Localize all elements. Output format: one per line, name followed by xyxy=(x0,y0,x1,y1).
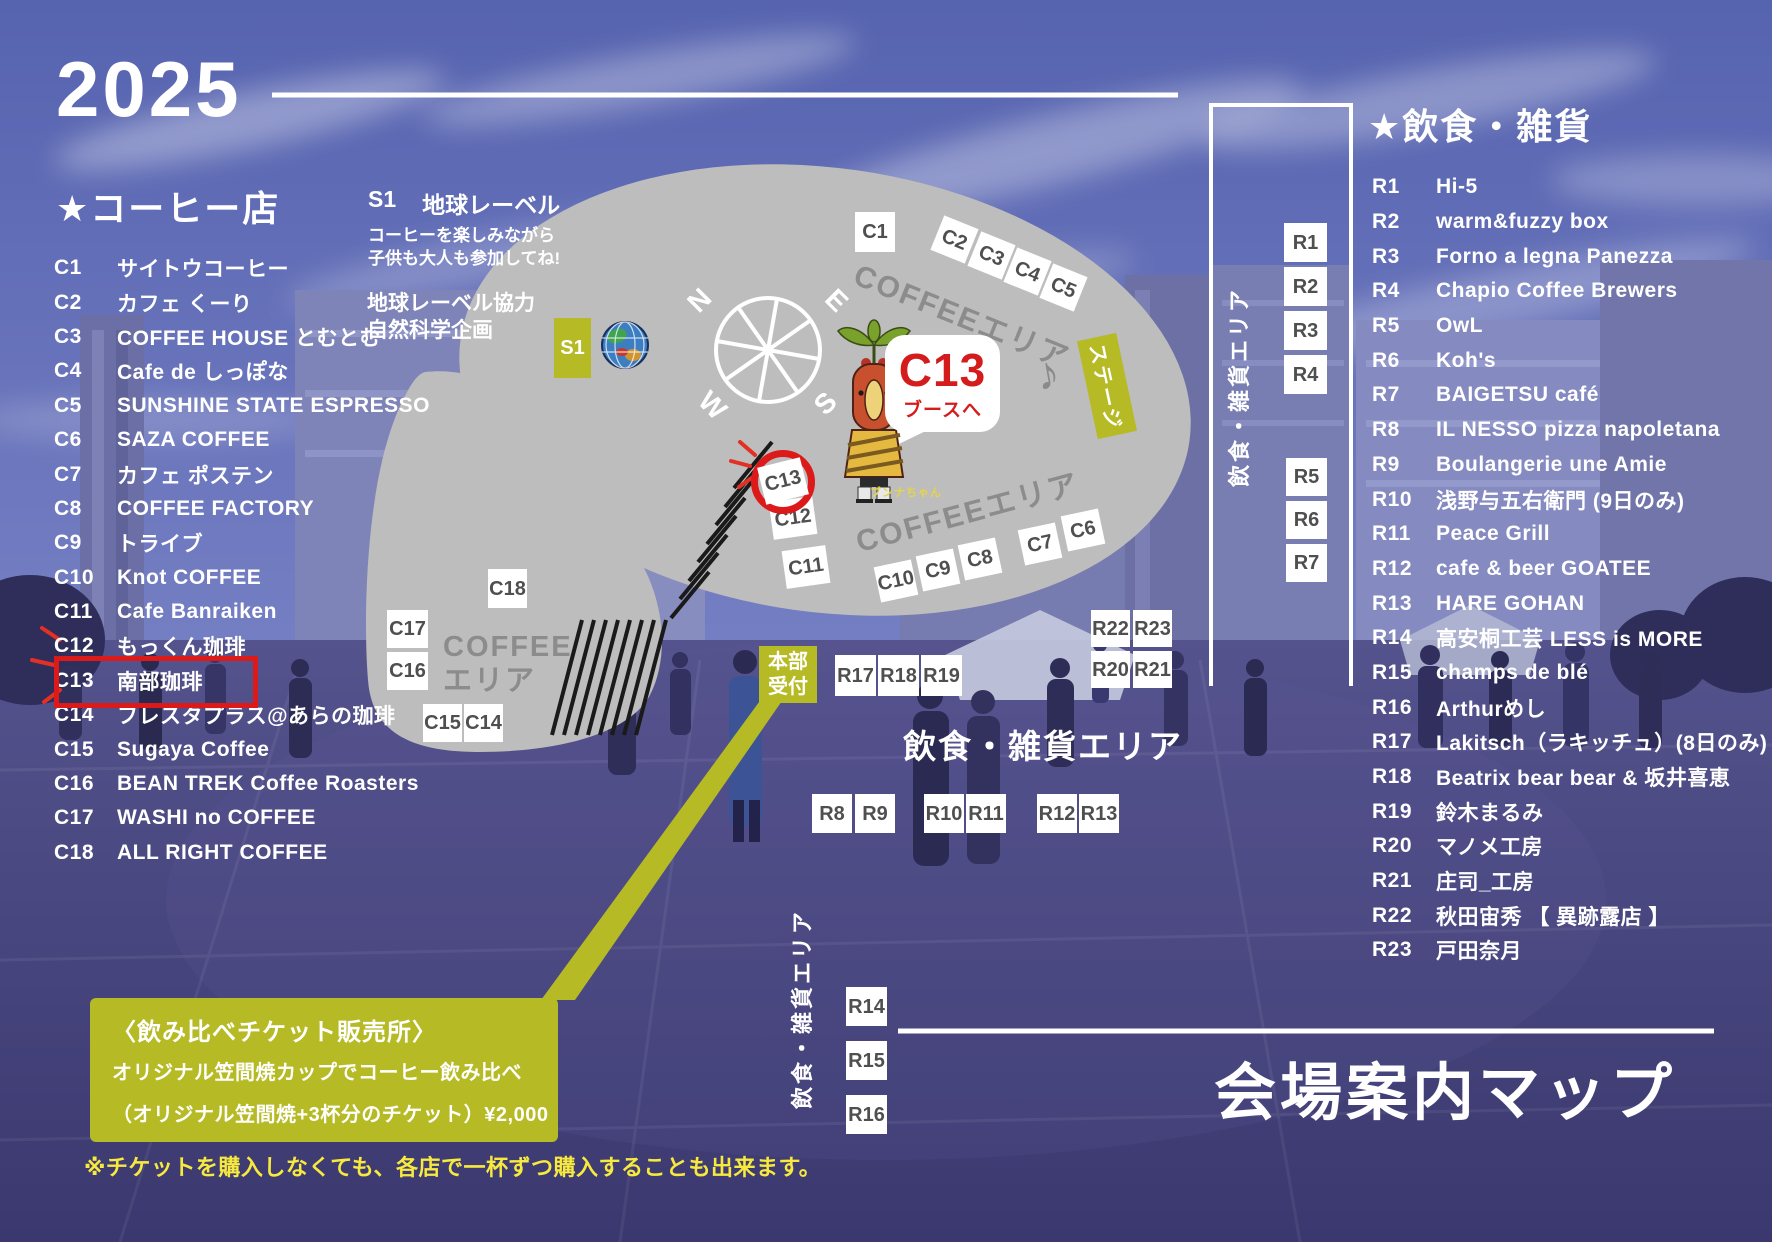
map-booth-r12: R12 xyxy=(1037,794,1077,833)
map-booth-r23: R23 xyxy=(1133,610,1172,647)
map-booth-r10: R10 xyxy=(924,794,964,833)
map-booth-r15: R15 xyxy=(846,1041,887,1080)
ticket-line1: 〈飲み比べチケット販売所〉 xyxy=(112,1012,437,1047)
list-item: C17WASHI no COFFEE xyxy=(54,801,430,835)
c13-callout-bubble: C13 ブースへ xyxy=(885,335,1000,432)
reception-beam xyxy=(541,698,784,1000)
list-item: R8IL NESSO pizza napoletana xyxy=(1372,413,1767,448)
food-list: R1Hi-5 R2warm&fuzzy box R3Forno a legna … xyxy=(1372,170,1767,968)
list-item: R1Hi-5 xyxy=(1372,170,1767,205)
list-item: R9Boulangerie une Amie xyxy=(1372,448,1767,483)
map-booth-r6: R6 xyxy=(1286,501,1327,539)
map-booth-r1: R1 xyxy=(1284,223,1327,262)
food-goods-vertical-label-right: 飲食・雑貨エリア xyxy=(1222,281,1254,493)
list-item: R6Koh's xyxy=(1372,343,1767,378)
map-booth-c6: C6 xyxy=(1061,508,1106,551)
map-booth-r18: R18 xyxy=(878,655,919,696)
list-item: C5SUNSHINE STATE ESPRESSO xyxy=(54,389,430,423)
coffee-area-label-blob: COFFEE エリア xyxy=(443,630,573,698)
reception-box: 本部 受付 xyxy=(759,646,817,703)
map-booth-r5: R5 xyxy=(1286,458,1327,496)
map-booth-c18: C18 xyxy=(488,569,527,608)
list-item: C3COFFEE HOUSE とむとむ xyxy=(54,320,430,354)
list-item: C8COFFEE FACTORY xyxy=(54,492,430,526)
list-item: C11Cafe Banraiken xyxy=(54,595,430,629)
venue-map-poster: N E S W xyxy=(0,0,1772,1242)
c13-highlight-box xyxy=(54,656,258,708)
list-item: C1サイトウコーヒー xyxy=(54,251,430,285)
list-item: R17Lakitsch（ラキッチュ）(8日のみ) xyxy=(1372,725,1767,760)
callout-text: ブースへ xyxy=(885,395,1000,422)
list-item: R14高安桐工芸 LESS is MORE xyxy=(1372,621,1767,656)
s1-info-title: S1 地球レーベル xyxy=(368,186,560,220)
map-booth-c9: C9 xyxy=(916,548,961,591)
venue-map-title: 会場案内マップ xyxy=(1195,1042,1695,1132)
coffee-list-header: ★コーヒー店 xyxy=(56,180,280,232)
food-goods-vertical-label-bottom: 飲食・雑貨エリア xyxy=(785,903,817,1115)
map-booth-s1: S1 xyxy=(554,318,591,378)
list-item: R7BAIGETSU café xyxy=(1372,378,1767,413)
ticket-line3: （オリジナル笠間焼+3杯分のチケット）¥2,000 xyxy=(112,1098,548,1127)
year-title: 2025 xyxy=(56,44,242,135)
map-booth-r20: R20 xyxy=(1091,651,1130,688)
map-booth-r4: R4 xyxy=(1284,355,1327,394)
list-item: C9トライブ xyxy=(54,526,430,560)
map-booth-r13: R13 xyxy=(1079,794,1119,833)
map-booth-r2: R2 xyxy=(1284,267,1327,306)
list-item: R18Beatrix bear bear & 坂井喜恵 xyxy=(1372,760,1767,795)
list-item: R2warm&fuzzy box xyxy=(1372,205,1767,240)
map-booth-c1: C1 xyxy=(855,212,895,252)
list-item: R16Arthurめし xyxy=(1372,690,1767,725)
map-booth-r21: R21 xyxy=(1133,651,1172,688)
food-goods-area-heading: 飲食・雑貨エリア xyxy=(903,720,1183,768)
map-booth-c8: C8 xyxy=(958,537,1003,580)
map-booth-r16: R16 xyxy=(846,1095,887,1134)
map-booth-c7: C7 xyxy=(1018,522,1063,565)
list-item: R21庄司_工房 xyxy=(1372,864,1767,899)
footnote-text: ※チケットを購入しなくても、各店で一杯ずつ購入することも出来ます。 xyxy=(84,1150,821,1182)
map-booth-r19: R19 xyxy=(921,655,962,696)
ticket-info-box: 〈飲み比べチケット販売所〉 オリジナル笠間焼カップでコーヒー飲み比べ （オリジナ… xyxy=(90,998,558,1142)
map-booth-r8: R8 xyxy=(812,794,852,833)
list-item: R3Forno a legna Panezza xyxy=(1372,239,1767,274)
callout-code: C13 xyxy=(885,347,1000,393)
map-booth-r17: R17 xyxy=(835,655,876,696)
list-item: R11Peace Grill xyxy=(1372,517,1767,552)
list-item: C10Knot COFFEE xyxy=(54,561,430,595)
list-item: C4Cafe de しっぽな xyxy=(54,354,430,388)
list-item: C2カフェ くーり xyxy=(54,285,430,319)
map-booth-r11: R11 xyxy=(966,794,1006,833)
map-booth-r22: R22 xyxy=(1091,610,1130,647)
map-booth-c14: C14 xyxy=(464,704,503,742)
list-item: C18ALL RIGHT COFFEE xyxy=(54,836,430,870)
map-booth-r3: R3 xyxy=(1284,311,1327,350)
food-list-header: ★飲食・雑貨 xyxy=(1368,98,1592,150)
map-booth-c10: C10 xyxy=(874,559,919,602)
list-item: R12cafe & beer GOATEE xyxy=(1372,552,1767,587)
map-booth-c16: C16 xyxy=(387,652,428,690)
mascot-name-label: ブンナちゃん xyxy=(870,484,942,500)
map-booth-c11: C11 xyxy=(782,545,831,589)
globe-icon xyxy=(602,322,648,368)
list-item: R23戸田奈月 xyxy=(1372,933,1767,968)
ticket-line2: オリジナル笠間焼カップでコーヒー飲み比べ xyxy=(112,1056,522,1085)
list-item: R13HARE GOHAN xyxy=(1372,586,1767,621)
list-item: C15Sugaya Coffee xyxy=(54,732,430,766)
map-booth-r7: R7 xyxy=(1286,544,1327,582)
list-item: C7カフェ ポステン xyxy=(54,457,430,491)
list-item: R5OwL xyxy=(1372,309,1767,344)
s1-code: S1 xyxy=(368,186,396,220)
list-item: R15champs de blé xyxy=(1372,656,1767,691)
list-item: R10浅野与五右衛門 (9日のみ) xyxy=(1372,482,1767,517)
list-item: C16BEAN TREK Coffee Roasters xyxy=(54,767,430,801)
list-item: R22秋田宙秀 【 異跡露店 】 xyxy=(1372,898,1767,933)
s1-name: 地球レーベル xyxy=(422,186,560,220)
map-booth-r9: R9 xyxy=(855,794,895,833)
coffee-list: C1サイトウコーヒー C2カフェ くーり C3COFFEE HOUSE とむとむ… xyxy=(54,251,430,870)
map-booth-c15: C15 xyxy=(423,704,462,742)
list-item: R4Chapio Coffee Brewers xyxy=(1372,274,1767,309)
list-item: C6SAZA COFFEE xyxy=(54,423,430,457)
list-item: R19鈴木まるみ xyxy=(1372,794,1767,829)
map-booth-c17: C17 xyxy=(387,610,428,648)
map-booth-r14: R14 xyxy=(846,987,887,1026)
list-item: R20マノメ工房 xyxy=(1372,829,1767,864)
